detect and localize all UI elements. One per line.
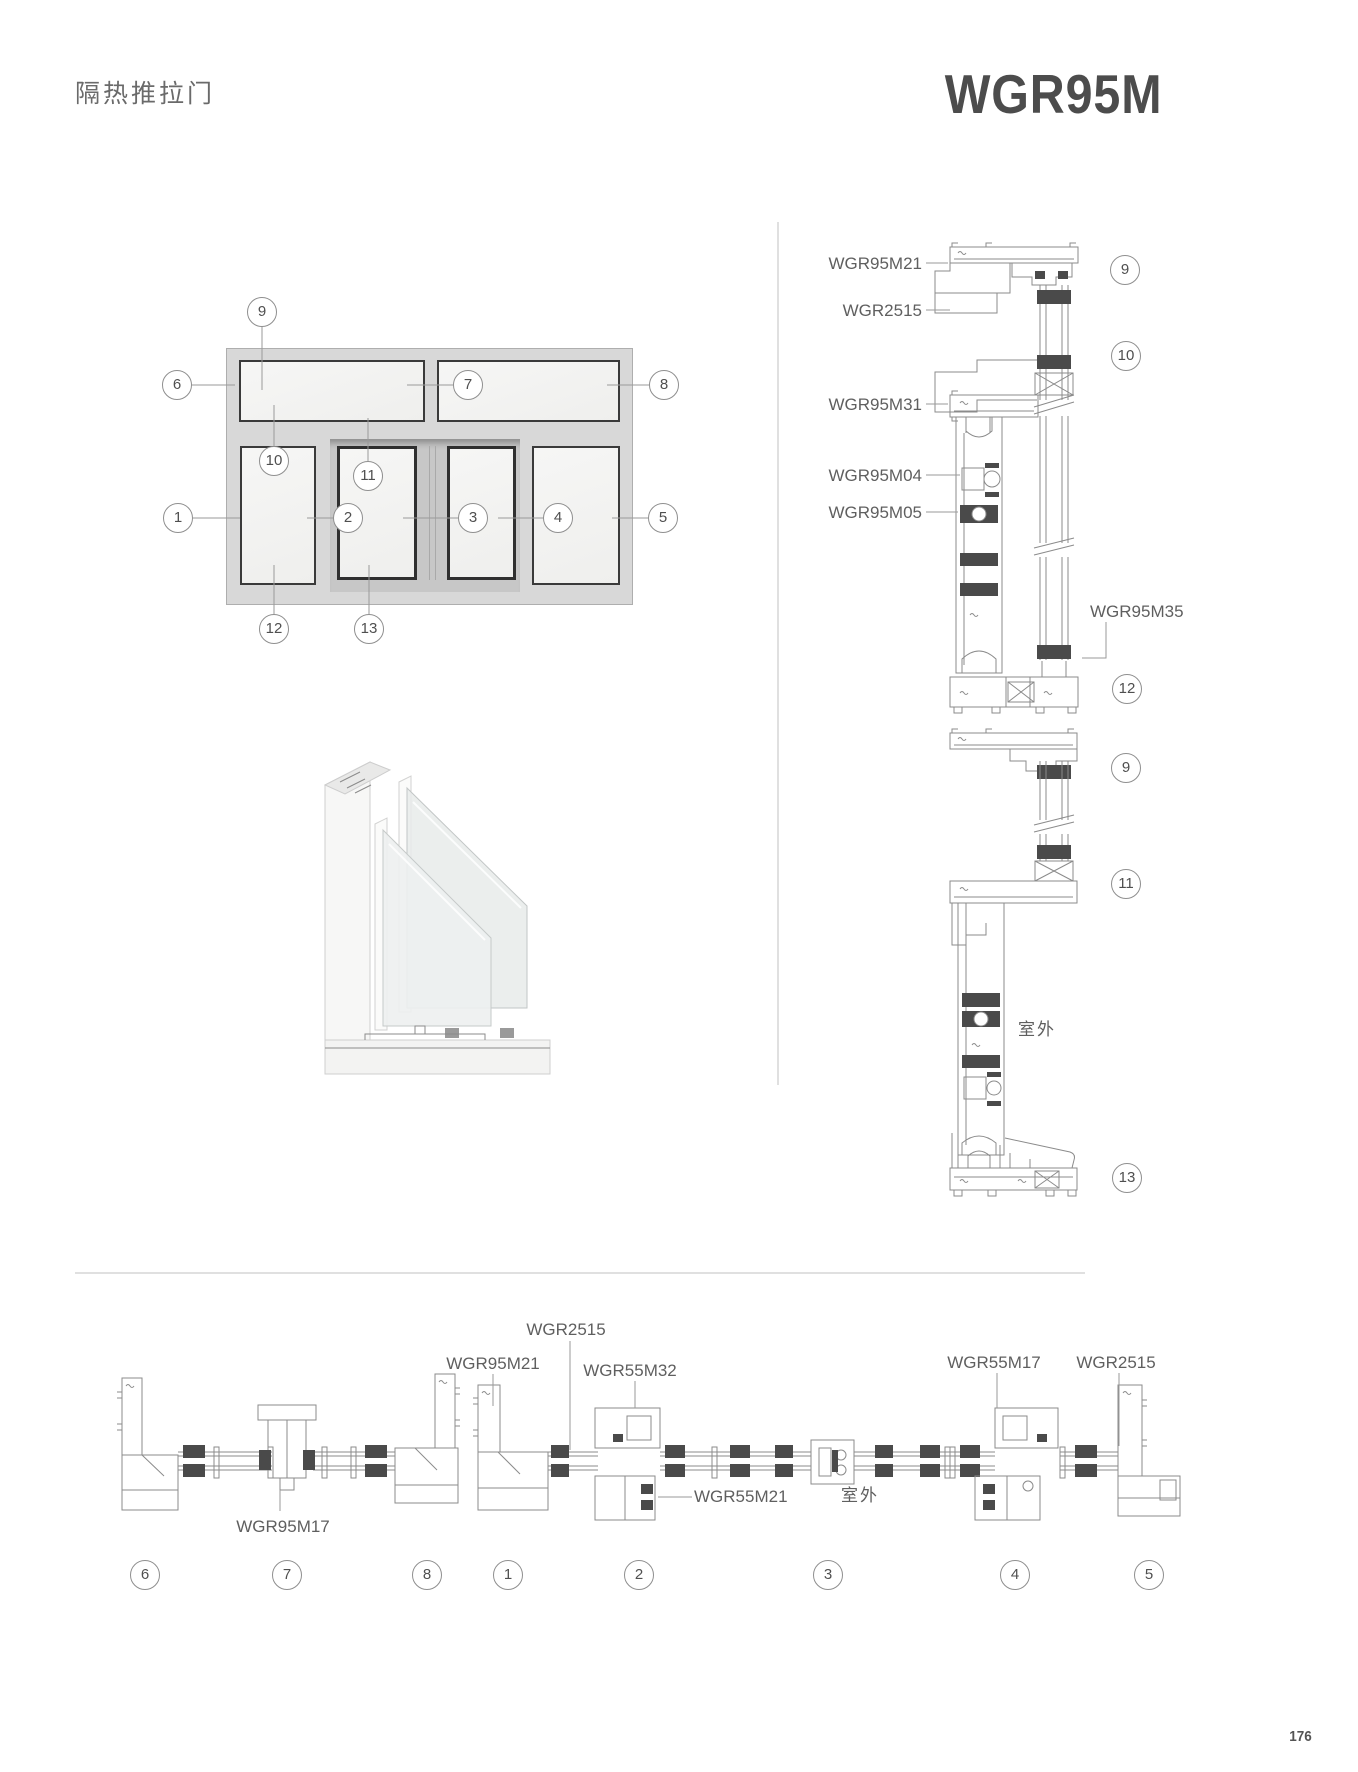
profile-label: WGR2515 xyxy=(501,1320,631,1340)
callout-9b: 9 xyxy=(1111,753,1141,783)
callout-10: 10 xyxy=(1111,341,1141,371)
callout-11: 11 xyxy=(1111,869,1141,899)
callout-1b: 1 xyxy=(493,1560,523,1590)
catalog-page: 隔热推拉门 WGR95M 176 1 2 3 4 5 6 7 8 9 10 11… xyxy=(0,0,1358,1772)
callout-1: 1 xyxy=(163,503,193,533)
outdoor-label: 室外 xyxy=(841,1486,879,1506)
callout-2b: 2 xyxy=(624,1560,654,1590)
product-3d-render xyxy=(295,710,565,1085)
page-title: 隔热推拉门 xyxy=(75,74,215,110)
callout-4b: 4 xyxy=(1000,1560,1030,1590)
profile-label: WGR55M32 xyxy=(565,1361,695,1381)
callout-3: 3 xyxy=(458,503,488,533)
vertical-section-bottom-drawing xyxy=(830,725,1170,1205)
callout-13: 13 xyxy=(354,614,384,644)
callout-7: 7 xyxy=(453,370,483,400)
callout-12: 12 xyxy=(1112,674,1142,704)
profile-label: WGR95M17 xyxy=(218,1517,348,1537)
profile-label: WGR95M04 xyxy=(812,466,922,486)
profile-label: WGR95M05 xyxy=(812,503,922,523)
callout-4: 4 xyxy=(543,503,573,533)
callout-7b: 7 xyxy=(272,1560,302,1590)
callout-9: 9 xyxy=(1110,255,1140,285)
profile-label: WGR2515 xyxy=(812,301,922,321)
profile-label: WGR55M17 xyxy=(929,1353,1059,1373)
page-number: 176 xyxy=(1289,1728,1312,1745)
callout-6: 6 xyxy=(162,370,192,400)
profile-label: WGR2515 xyxy=(1051,1353,1181,1373)
callout-9: 9 xyxy=(247,297,277,327)
callout-13: 13 xyxy=(1112,1163,1142,1193)
callout-5: 5 xyxy=(648,503,678,533)
track-line xyxy=(435,446,436,580)
callout-3b: 3 xyxy=(813,1560,843,1590)
callout-2: 2 xyxy=(333,503,363,533)
profile-label: WGR95M31 xyxy=(812,395,922,415)
callout-10: 10 xyxy=(259,446,289,476)
profile-label: WGR95M35 xyxy=(1090,602,1184,622)
callout-8: 8 xyxy=(649,370,679,400)
profile-label: WGR55M21 xyxy=(694,1487,788,1507)
profile-label: WGR95M21 xyxy=(428,1354,558,1374)
callout-12: 12 xyxy=(259,614,289,644)
outdoor-label: 室外 xyxy=(1018,1020,1056,1040)
callout-11: 11 xyxy=(353,461,383,491)
product-code: WGR95M xyxy=(944,62,1162,126)
track-line xyxy=(429,446,430,580)
transom-glass-left xyxy=(239,360,425,422)
callout-6b: 6 xyxy=(130,1560,160,1590)
callout-5b: 5 xyxy=(1134,1560,1164,1590)
profile-label: WGR95M21 xyxy=(812,254,922,274)
callout-8b: 8 xyxy=(412,1560,442,1590)
